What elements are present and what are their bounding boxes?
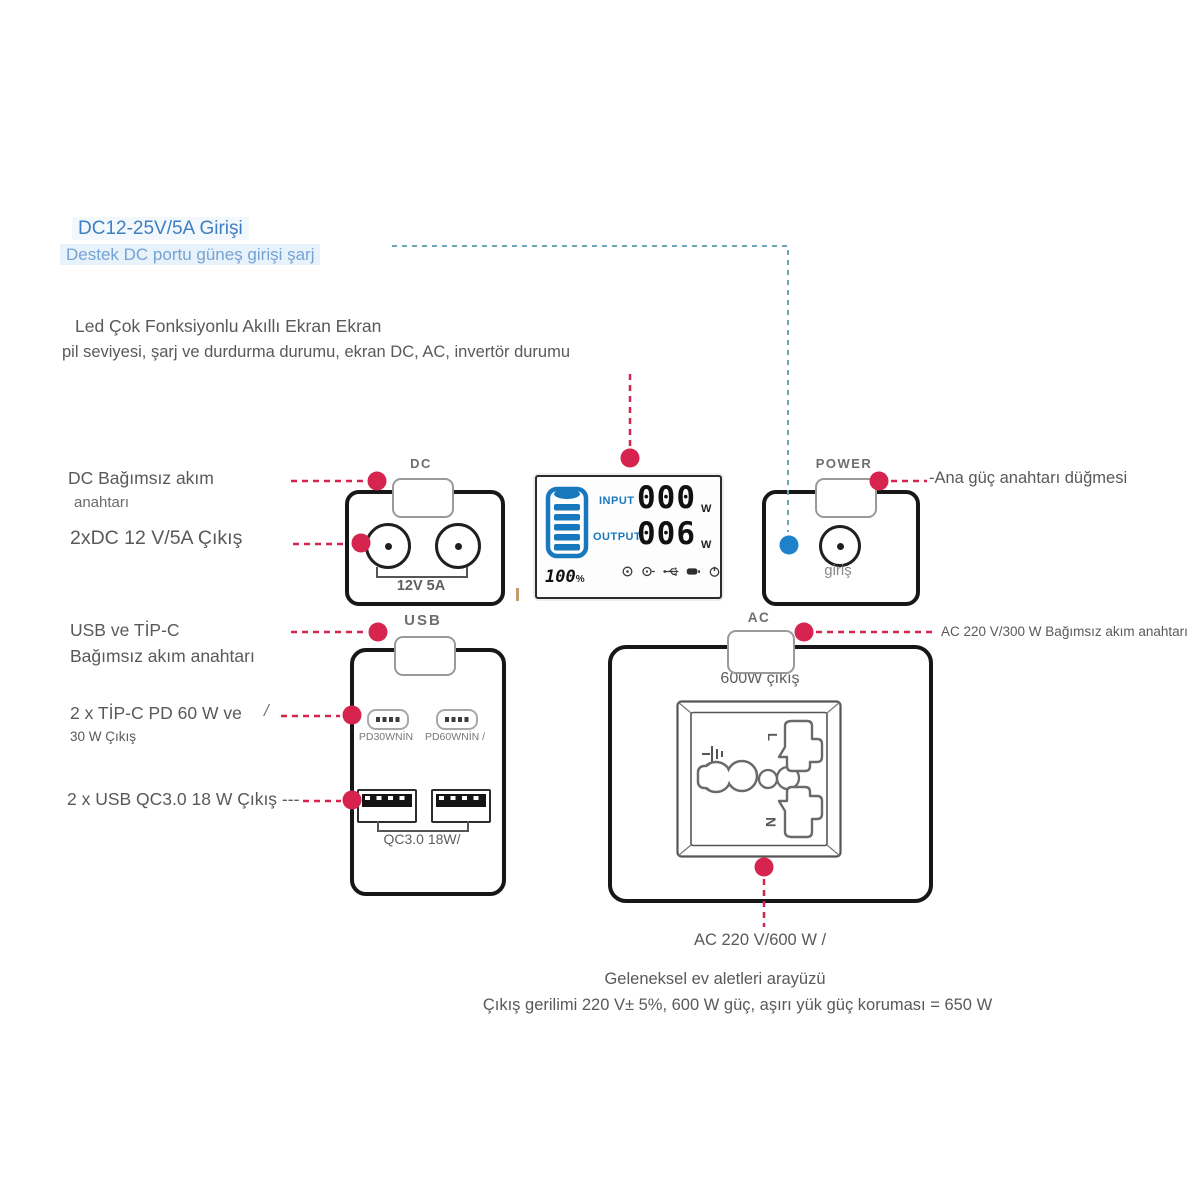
dc-output-label: 2xDC 12 V/5A Çıkış	[70, 527, 242, 550]
dc-input-subtitle-text: Destek DC portu güneş girişi şarj	[60, 244, 320, 265]
power-input-pin	[837, 543, 844, 550]
typec-right-pins	[445, 717, 469, 722]
dc-port-left-pin	[385, 543, 392, 550]
ac-switch-button	[727, 630, 795, 674]
socket-neutral-mark: N	[763, 817, 779, 827]
dc-port-left	[365, 523, 411, 569]
dc-port-right-pin	[455, 543, 462, 550]
ac-bottom-label: AC 220 V/600 W /	[694, 931, 826, 950]
lcd-dot	[621, 449, 640, 468]
dc-switch-label-1: DC Bağımsız akım	[68, 468, 214, 489]
dc-ports-label: 12V 5A	[376, 578, 466, 594]
usb-switch-label-2: Bağımsız akım anahtarı	[70, 646, 255, 667]
ac-switch-label: AC 220 V/300 W Bağımsız akım anahtarı	[941, 624, 1188, 639]
lcd-output-unit: W	[701, 539, 711, 551]
power-input-port	[819, 525, 861, 567]
power-button-caption: POWER	[808, 456, 880, 471]
dc-switch-button	[392, 478, 454, 518]
lcd-input-label: INPUT	[599, 495, 635, 507]
typec-port-right	[436, 709, 478, 730]
dc-port-right	[435, 523, 481, 569]
ac-socket: L N	[676, 700, 842, 858]
ac-button-caption: AC	[731, 610, 787, 625]
usb-switch-dot	[369, 623, 388, 642]
typec-label-2: 30 W Çıkış	[70, 729, 136, 744]
battery-status-icon	[686, 565, 701, 578]
typec-right-label: PD60WNİN /	[413, 731, 497, 743]
led-screen-desc: pil seviyesi, şarj ve durdurma durumu, e…	[62, 343, 570, 362]
lcd-status-icons	[621, 565, 721, 578]
usb-output-label: 2 x USB QC3.0 18 W Çıkış ---	[67, 789, 299, 810]
usb-icon	[663, 565, 679, 578]
battery-icon	[545, 483, 589, 559]
footer-line1: Geleneksel ev aletleri arayüzü	[0, 970, 1200, 989]
lcd-battery-unit: %	[576, 574, 585, 585]
usb-switch-label-1: USB ve TİP-C	[70, 620, 180, 641]
lcd-input-value: 000	[637, 480, 696, 516]
typec-label-1: 2 x TİP-C PD 60 W ve	[70, 703, 242, 724]
dc-switch-label-2: anahtarı	[74, 494, 129, 511]
power-button	[815, 478, 877, 518]
connector-overlay	[0, 0, 1200, 1200]
footer-line2: Çıkış gerilimi 220 V± 5%, 600 W güç, aşı…	[0, 996, 1200, 1015]
usba-label: QC3.0 18W/	[361, 831, 483, 847]
dc-input-title: DC12-25V/5A Girişi	[72, 218, 249, 240]
usba-port-left	[357, 789, 417, 823]
usb-button-caption: USB	[386, 612, 460, 629]
dc-input-subtitle: Destek DC portu güneş girişi şarj	[60, 245, 320, 265]
dc-plug-icon	[641, 565, 656, 578]
socket-live-mark: L	[765, 733, 780, 741]
lcd-input-unit: W	[701, 503, 711, 515]
power-port-label: giriş	[808, 562, 868, 579]
typec-port-left	[367, 709, 409, 730]
usba-left-contacts	[362, 794, 412, 807]
lcd-display: INPUT 000 W OUTPUT 006 W 100%	[535, 475, 722, 599]
dc-ports-bracket	[376, 567, 468, 578]
lcd-battery-value: 100	[545, 567, 576, 587]
lcd-output-label: OUTPUT	[593, 531, 641, 543]
diagram-canvas: DC12-25V/5A Girişi Destek DC portu güneş…	[0, 0, 1200, 1200]
usba-port-right	[431, 789, 491, 823]
usb-switch-button	[394, 636, 456, 676]
usb-module	[350, 648, 506, 896]
power-status-icon	[708, 565, 721, 578]
main-power-label: -Ana güç anahtarı düğmesi	[929, 469, 1127, 488]
artifact-mark	[516, 588, 519, 601]
lcd-battery-percent: 100%	[545, 567, 585, 587]
led-screen-title: Led Çok Fonksiyonlu Akıllı Ekran Ekran	[75, 316, 381, 337]
dc-switch-dot	[368, 472, 387, 491]
typec-left-pins	[376, 717, 400, 722]
usba-right-contacts	[436, 794, 486, 807]
ac-switch-dot	[795, 623, 814, 642]
ring-icon	[621, 565, 634, 578]
dc-input-title-text: DC12-25V/5A Girişi	[72, 217, 249, 240]
typec-stray-slash: /	[264, 701, 269, 721]
lcd-output-value: 006	[637, 516, 696, 552]
dc-button-caption: DC	[392, 456, 450, 471]
